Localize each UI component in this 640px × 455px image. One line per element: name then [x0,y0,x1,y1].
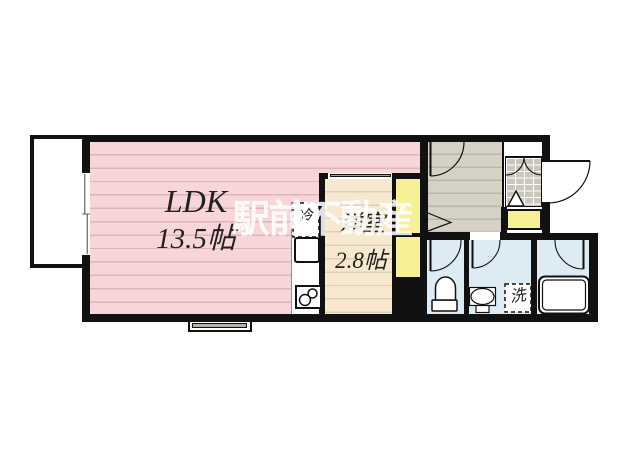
bathtub-icon [539,277,589,314]
bath-door-arc [555,240,584,269]
sink-icon [470,288,496,313]
entry-storage-doors [506,157,542,175]
folding-door-icon [428,213,451,231]
watermark: 駅前不動産 [230,197,414,243]
entrance-door-arc [548,161,590,203]
washroom-door-arc [473,240,501,268]
stove-icon [296,286,321,308]
balcony-window-sash [82,174,90,254]
entry-step-icon [508,191,524,206]
floor-plan: LDK 13.5帖 洋室 2.8帖 冷 洗 駅前不動産 [0,0,640,455]
hall-door-arc [431,142,465,176]
washer-label: 洗 [508,288,528,307]
toilet-icon [432,277,457,311]
western-room-size-label: 2.8帖 [321,249,401,273]
toilet-door-arc [431,240,462,271]
